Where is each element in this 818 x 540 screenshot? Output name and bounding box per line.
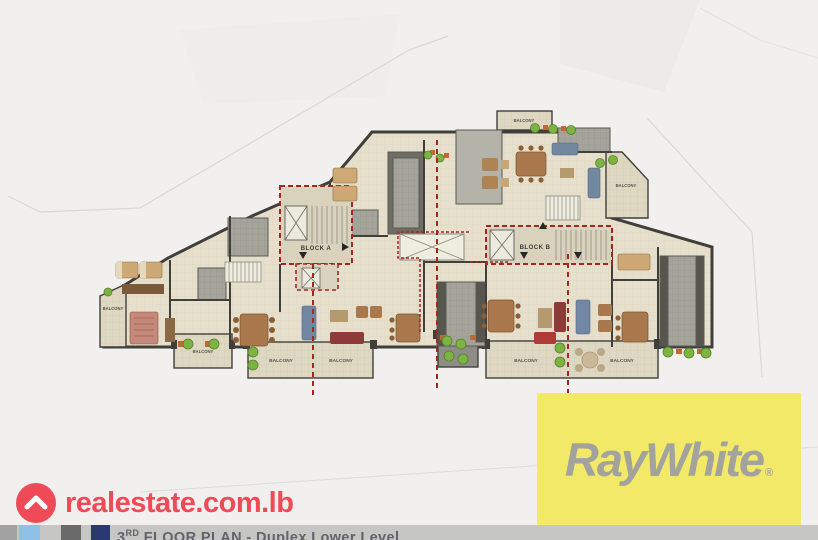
caption-title: FLOOR PLAN - Duplex Lower Level [139,530,399,540]
caption-floor-ordinal: RD [125,528,139,538]
palette-square-gray [0,525,17,540]
realestate-logo-text: realestate.com.lb [65,487,293,520]
balcony-label: BALCONY [329,358,354,364]
realestate-logo: realestate.com.lb [16,483,293,523]
listing-image: BLOCK A BLOCK B [0,0,818,540]
floor-plan-caption: 3RD FLOOR PLAN - Duplex Lower Level [117,525,399,540]
lightwell-void [400,234,464,260]
block-b-label: BLOCK B [520,245,551,251]
balcony-label: BALCONY [610,358,635,364]
block-a-label: BLOCK A [301,246,332,252]
caption-bar: 3RD FLOOR PLAN - Duplex Lower Level [0,525,818,540]
raywhite-logo-panel: RayWhite® [537,393,801,525]
palette-square-lightblue [19,525,40,540]
raywhite-name: RayWhite [565,433,763,486]
balcony-label: BALCONY [514,358,539,364]
block-b-core: BLOCK B [486,222,612,264]
balcony-label: BALCONY [616,183,637,188]
balcony-label: BALCONY [193,349,214,354]
raywhite-wordmark: RayWhite® [565,432,773,487]
balcony-label: BALCONY [269,358,294,364]
balcony-bottom-left [248,342,373,378]
palette-square-navy [91,525,110,540]
palette-square-darkgray [61,525,81,540]
balcony-label: BALCONY [514,118,535,123]
registered-trademark-symbol: ® [765,467,773,479]
chevron-up-icon [23,493,49,513]
realestate-logo-circle [16,483,56,523]
balcony-label: BALCONY [103,306,124,311]
